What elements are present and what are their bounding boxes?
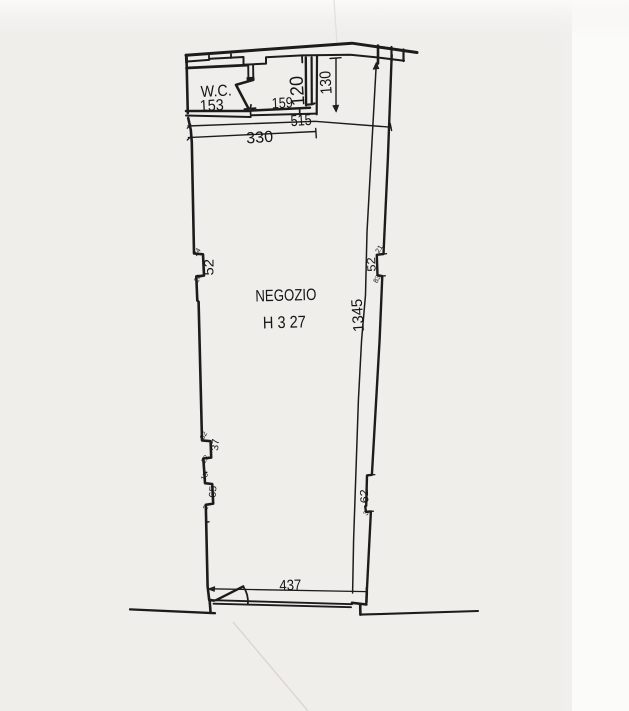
- svg-text:NEGOZIO: NEGOZIO: [255, 286, 317, 306]
- svg-text:37: 37: [210, 438, 222, 451]
- svg-text:120: 120: [286, 75, 309, 106]
- svg-text:1345: 1345: [349, 298, 368, 332]
- svg-text:52: 52: [364, 257, 379, 273]
- svg-text:515: 515: [290, 112, 312, 130]
- svg-text:330: 330: [246, 129, 274, 148]
- svg-text:130: 130: [317, 70, 336, 95]
- svg-text:H 3 27: H 3 27: [263, 312, 306, 332]
- svg-text:437: 437: [279, 577, 302, 595]
- svg-text:65: 65: [208, 485, 220, 498]
- svg-text:52: 52: [201, 259, 216, 276]
- svg-text:62: 62: [359, 489, 372, 504]
- svg-text:153: 153: [199, 97, 224, 115]
